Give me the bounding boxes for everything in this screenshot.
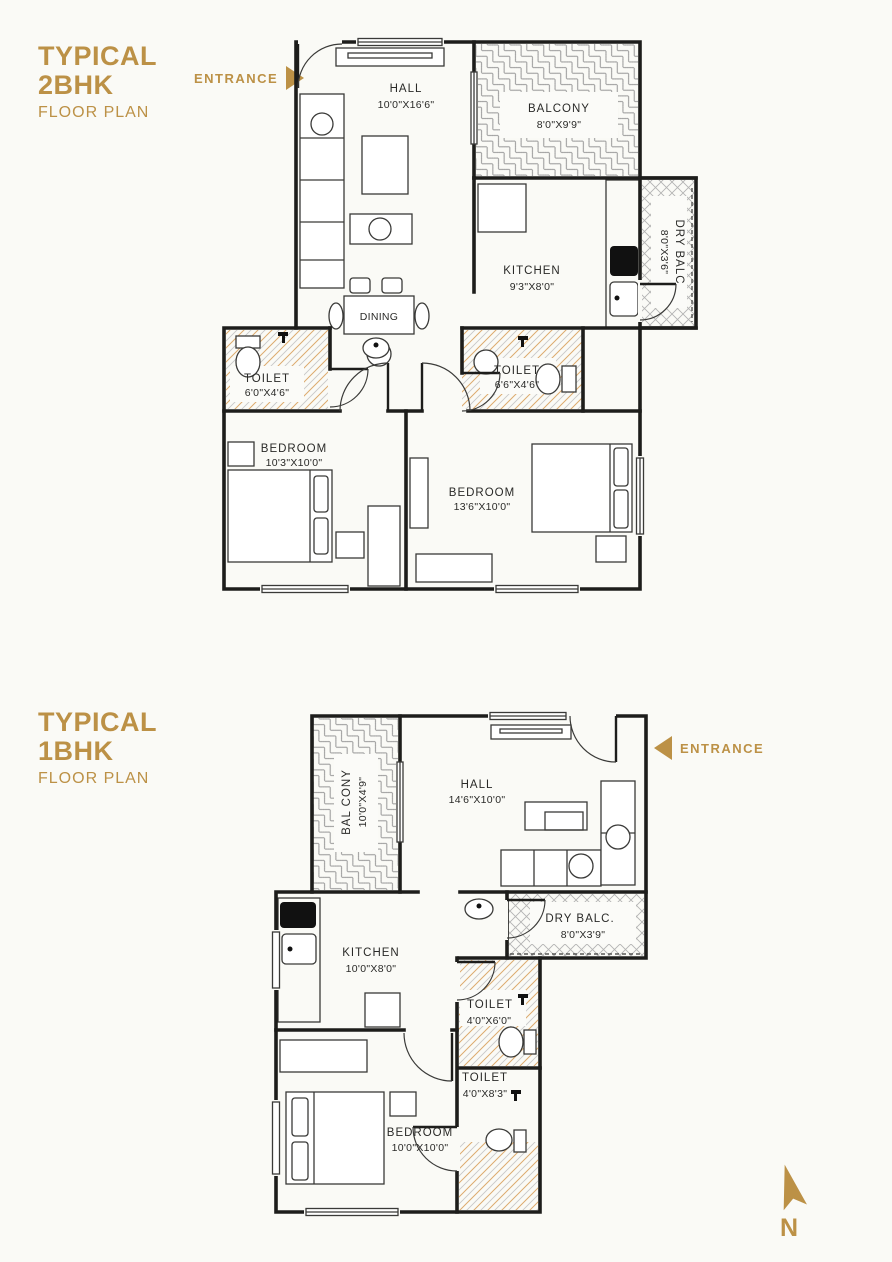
room-dims-toilet-right: 6'6"X4'6"	[495, 379, 540, 391]
room-dims-hall: 10'0"X16'6"	[378, 99, 435, 111]
room-dims-toilet-left: 6'0"X4'6"	[245, 387, 290, 399]
room-label-dining: DINING	[360, 311, 399, 323]
room-label-toilet-left: TOILET	[244, 373, 290, 385]
title-2bhk-line2: 2BHK	[38, 71, 157, 100]
room-label-dry-balcony: DRY BALC	[673, 219, 685, 284]
north-label: N	[780, 1214, 798, 1242]
room-dims-bedroom-right: 13'6"X10'0"	[454, 501, 511, 513]
room-label-toilet-bottom: TOILET	[462, 1072, 508, 1084]
room-dims-balcony-1bhk: 10'0"X4'9"	[357, 777, 369, 828]
title-1bhk-subtitle: FLOOR PLAN	[38, 770, 157, 788]
brochure-page: TYPICAL 2BHK FLOOR PLAN ENTRANCE	[0, 0, 892, 1262]
title-2bhk: TYPICAL 2BHK FLOOR PLAN	[38, 42, 157, 122]
title-1bhk-line1: TYPICAL	[38, 708, 157, 737]
title-2bhk-line1: TYPICAL	[38, 42, 157, 71]
room-label-hall-1bhk: HALL	[461, 779, 494, 791]
north-compass: N	[756, 1156, 826, 1246]
entrance-label-1bhk: ENTRANCE	[680, 741, 764, 756]
room-dims-dry-balcony: 8'0"X3'6"	[658, 230, 670, 275]
title-1bhk: TYPICAL 1BHK FLOOR PLAN	[38, 708, 157, 788]
room-label-balcony-1bhk: BAL CONY	[341, 769, 353, 835]
room-dims-bedroom-1bhk: 10'0"X10'0"	[392, 1142, 449, 1154]
room-dims-toilet-bottom: 4'0"X8'3"	[463, 1088, 508, 1100]
floor-plan-2bhk: HALL 10'0"X16'6" BALCONY 8'0"X9'9" KITCH…	[210, 28, 710, 603]
title-1bhk-line2: 1BHK	[38, 737, 157, 766]
room-dims-balcony: 8'0"X9'9"	[537, 119, 582, 131]
room-label-kitchen-1bhk: KITCHEN	[342, 947, 399, 959]
room-dims-toilet-top: 4'0"X6'0"	[467, 1015, 512, 1027]
room-dims-kitchen-1bhk: 10'0"X8'0"	[346, 963, 397, 975]
room-label-balcony: BALCONY	[528, 103, 590, 115]
room-dims-hall-1bhk: 14'6"X10'0"	[449, 794, 506, 806]
room-label-bedroom-right: BEDROOM	[449, 487, 515, 499]
title-2bhk-subtitle: FLOOR PLAN	[38, 104, 157, 122]
room-label-bedroom-left: BEDROOM	[261, 443, 327, 455]
room-label-kitchen: KITCHEN	[503, 265, 560, 277]
room-label-toilet-right: TOILET	[494, 365, 540, 377]
room-label-dry-balcony-1bhk: DRY BALC.	[545, 913, 614, 925]
room-dims-dry-balcony-1bhk: 8'0"X3'9"	[561, 929, 606, 941]
room-label-toilet-top: TOILET	[467, 999, 513, 1011]
room-label-bedroom-1bhk: BEDROOM	[387, 1127, 453, 1139]
room-dims-kitchen: 9'3"X8'0"	[510, 281, 555, 293]
room-dims-bedroom-left: 10'3"X10'0"	[266, 457, 323, 469]
floor-plan-1bhk: HALL 14'6"X10'0" BAL CONY 10'0"X4'9" DRY…	[268, 702, 668, 1222]
room-label-hall: HALL	[390, 83, 423, 95]
entrance-callout-1bhk: ENTRANCE	[654, 736, 764, 760]
north-arrow-icon	[773, 1162, 807, 1210]
